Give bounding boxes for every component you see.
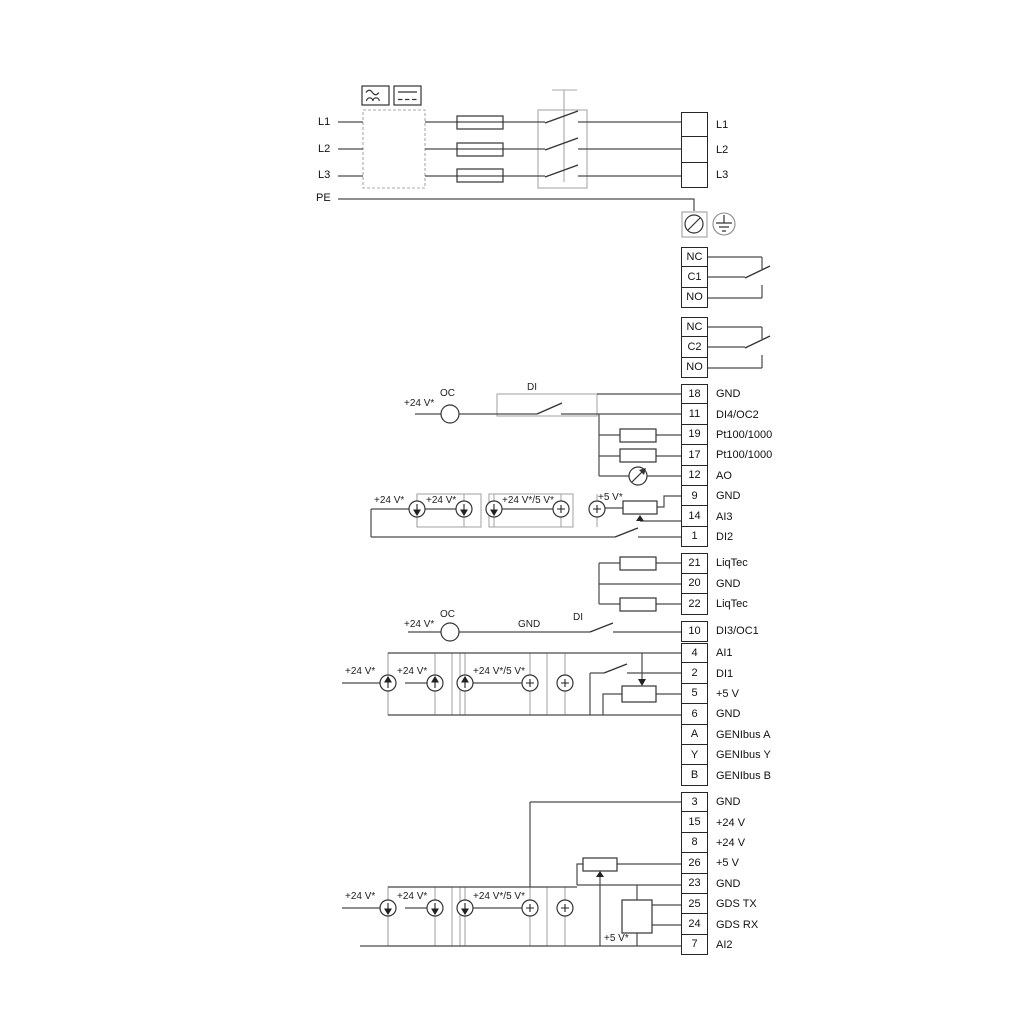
supply-label-24v: +24 V*	[397, 666, 427, 677]
supply-label-24v-5v: +24 V*/5 V*	[473, 666, 525, 677]
terminal-cell-8: 8	[681, 833, 708, 853]
potentiometer-icon	[583, 858, 617, 871]
terminal-label: Pt100/1000	[716, 429, 772, 441]
switch-actuator	[552, 90, 577, 182]
terminal-strip-b: 4 2 5 6 A Y B	[681, 643, 708, 786]
relay1-terminal-block: NC C1 NO	[681, 247, 708, 308]
supply-label-24v: +24 V*	[397, 891, 427, 902]
terminal-cell-5: 5	[681, 684, 708, 704]
terminal-cell-18: 18	[681, 384, 708, 404]
terminal-cell-genibus-a: A	[681, 725, 708, 745]
terminal-cell-20: 20	[681, 574, 708, 595]
terminal-cell-l3	[681, 163, 708, 188]
pulse-humps-icon	[367, 98, 380, 101]
terminal-label: GND	[716, 490, 740, 502]
terminal-cell-no2: NO	[681, 358, 708, 378]
mains-label-l1: L1	[318, 116, 330, 128]
terminal-strip-10-labels: DI3/OC1	[716, 621, 759, 642]
source-symbols	[380, 501, 605, 916]
potentiometer-wiper-arrow	[596, 871, 604, 877]
terminal-cell-genibus-y: Y	[681, 745, 708, 765]
terminal-label: AI1	[716, 647, 733, 659]
open-collector-icon	[441, 623, 459, 641]
rcd-filter-box	[363, 110, 425, 188]
terminal-label: AI3	[716, 511, 733, 523]
supply-label-5v: +5 V*	[604, 933, 629, 944]
ground-label: GND	[518, 619, 540, 630]
open-collector-label: OC	[440, 609, 455, 620]
digital-input-label: DI	[527, 382, 537, 393]
wiring-diagram-canvas: L1 L2 L3 PE L1 L2 L3 NC C1 NO NC C2 NO 1…	[0, 0, 1024, 1024]
terminal-cell-4: 4	[681, 643, 708, 663]
terminal-cell-17: 17	[681, 445, 708, 465]
sine-wave-icon	[366, 90, 379, 95]
dc-symbol-box	[394, 86, 421, 105]
resistor-icon	[620, 598, 656, 611]
dc-current-icon	[398, 92, 417, 100]
terminal-strip-liqtec-labels: LiqTec GND LiqTec	[716, 553, 748, 615]
terminal-cell-l2	[681, 137, 708, 162]
terminal-label: GND	[716, 708, 740, 720]
terminal-label: GND	[716, 388, 740, 400]
supply-label-5v: +5 V*	[598, 492, 623, 503]
potentiometer-wiper-arrow	[638, 679, 646, 686]
supply-label-24v: +24 V*	[404, 619, 434, 630]
terminal-label: GENIbus Y	[716, 749, 771, 761]
terminal-cell-22: 22	[681, 594, 708, 615]
terminal-label: L3	[716, 169, 728, 181]
terminal-cell-12: 12	[681, 466, 708, 486]
supply-label-24v: +24 V*	[404, 398, 434, 409]
terminal-cell-9: 9	[681, 486, 708, 506]
terminal-strip-liqtec: 21 20 22	[681, 553, 708, 615]
terminal-label: GND	[716, 796, 740, 808]
potentiometer-wiper-arrow	[636, 515, 644, 521]
terminal-cell-no1: NO	[681, 288, 708, 308]
supply-label-24v: +24 V*	[426, 495, 456, 506]
terminal-cell-11: 11	[681, 404, 708, 424]
power-terminal-labels: L1 L2 L3	[716, 112, 728, 188]
terminal-label: DI2	[716, 531, 733, 543]
mains-label-l2: L2	[318, 143, 330, 155]
terminal-label: GND	[716, 878, 740, 890]
terminal-label: AI2	[716, 939, 733, 951]
terminal-label: DI1	[716, 668, 733, 680]
terminal-strip-a-labels: GND DI4/OC2 Pt100/1000 Pt100/1000 AO GND…	[716, 384, 772, 547]
potentiometer-icon	[622, 686, 656, 702]
wiring-graphics	[0, 0, 1024, 1024]
terminal-label: DI4/OC2	[716, 409, 759, 421]
terminal-cell-19: 19	[681, 425, 708, 445]
terminal-label: +24 V	[716, 817, 745, 829]
terminal-cell-2: 2	[681, 663, 708, 683]
terminal-strip-10: 10	[681, 621, 708, 642]
terminal-cell-nc1: NC	[681, 247, 708, 267]
terminal-label: AO	[716, 470, 732, 482]
terminal-cell-14: 14	[681, 506, 708, 526]
terminal-strip-b-labels: AI1 DI1 +5 V GND GENIbus A GENIbus Y GEN…	[716, 643, 771, 786]
terminal-cell-10: 10	[681, 621, 708, 642]
resistor-icon	[620, 429, 656, 442]
terminal-cell-7: 7	[681, 935, 708, 955]
mains-label-pe: PE	[316, 192, 331, 204]
relay-contact-blade-icon	[745, 266, 770, 348]
terminal-label: GDS RX	[716, 919, 758, 931]
terminal-label: L2	[716, 144, 728, 156]
terminal-cell-24: 24	[681, 914, 708, 934]
supply-label-24v: +24 V*	[345, 666, 375, 677]
terminal-cell-23: 23	[681, 874, 708, 894]
gds-sensor-box	[622, 900, 652, 933]
terminal-label: +5 V	[716, 857, 739, 869]
di-box-frame	[497, 394, 597, 416]
terminal-label: +24 V	[716, 837, 745, 849]
potentiometer-icon	[623, 501, 657, 514]
terminal-cell-nc2: NC	[681, 317, 708, 337]
relay1-wires	[708, 257, 762, 298]
earthing	[682, 212, 735, 237]
supply-label-24v-5v: +24 V*/5 V*	[473, 891, 525, 902]
terminal-cell-25: 25	[681, 894, 708, 914]
switch-blade-icon	[545, 111, 578, 177]
rcd-type-symbols	[362, 86, 421, 105]
terminal-cell-1: 1	[681, 527, 708, 547]
terminal-cell-6: 6	[681, 704, 708, 724]
terminal-label: DI3/OC1	[716, 625, 759, 637]
terminal-strip-c: 3 15 8 26 23 25 24 7	[681, 792, 708, 955]
resistor-icon	[620, 449, 656, 462]
terminal-strip-a: 18 11 19 17 12 9 14 1	[681, 384, 708, 547]
supply-label-24v: +24 V*	[345, 891, 375, 902]
terminal-cell-3: 3	[681, 792, 708, 812]
pulsating-current-symbol-box	[362, 86, 389, 105]
supply-label-24v-5v: +24 V*/5 V*	[502, 495, 554, 506]
terminal-label: L1	[716, 119, 728, 131]
terminal-label: GENIbus A	[716, 729, 770, 741]
terminal-cell-c1: C1	[681, 267, 708, 287]
digital-input-label: DI	[573, 612, 583, 623]
terminal-cell-c2: C2	[681, 337, 708, 357]
terminal-label: GND	[716, 578, 740, 590]
relay2-terminal-block: NC C2 NO	[681, 317, 708, 378]
terminal-label: GENIbus B	[716, 770, 771, 782]
power-terminal-block	[681, 112, 708, 188]
terminal-cell-l1	[681, 112, 708, 137]
terminal-label: GDS TX	[716, 898, 757, 910]
terminal-cell-genibus-b: B	[681, 765, 708, 785]
terminal-cell-21: 21	[681, 553, 708, 574]
open-collector-label: OC	[440, 388, 455, 399]
terminal-cell-26: 26	[681, 853, 708, 873]
terminal-strip-c-labels: GND +24 V +24 V +5 V GND GDS TX GDS RX A…	[716, 792, 758, 955]
wire-pe	[338, 199, 694, 211]
terminal-label: +5 V	[716, 688, 739, 700]
open-collector-icon	[441, 405, 459, 423]
terminal-cell-15: 15	[681, 812, 708, 832]
relay2-wires	[708, 327, 762, 368]
resistor-icon	[620, 557, 656, 570]
terminal-label: LiqTec	[716, 598, 748, 610]
frames	[363, 90, 597, 946]
terminal-label: LiqTec	[716, 557, 748, 569]
supply-label-24v: +24 V*	[374, 495, 404, 506]
source-glyphs	[385, 504, 601, 914]
mains-label-l3: L3	[318, 169, 330, 181]
terminal-label: Pt100/1000	[716, 449, 772, 461]
